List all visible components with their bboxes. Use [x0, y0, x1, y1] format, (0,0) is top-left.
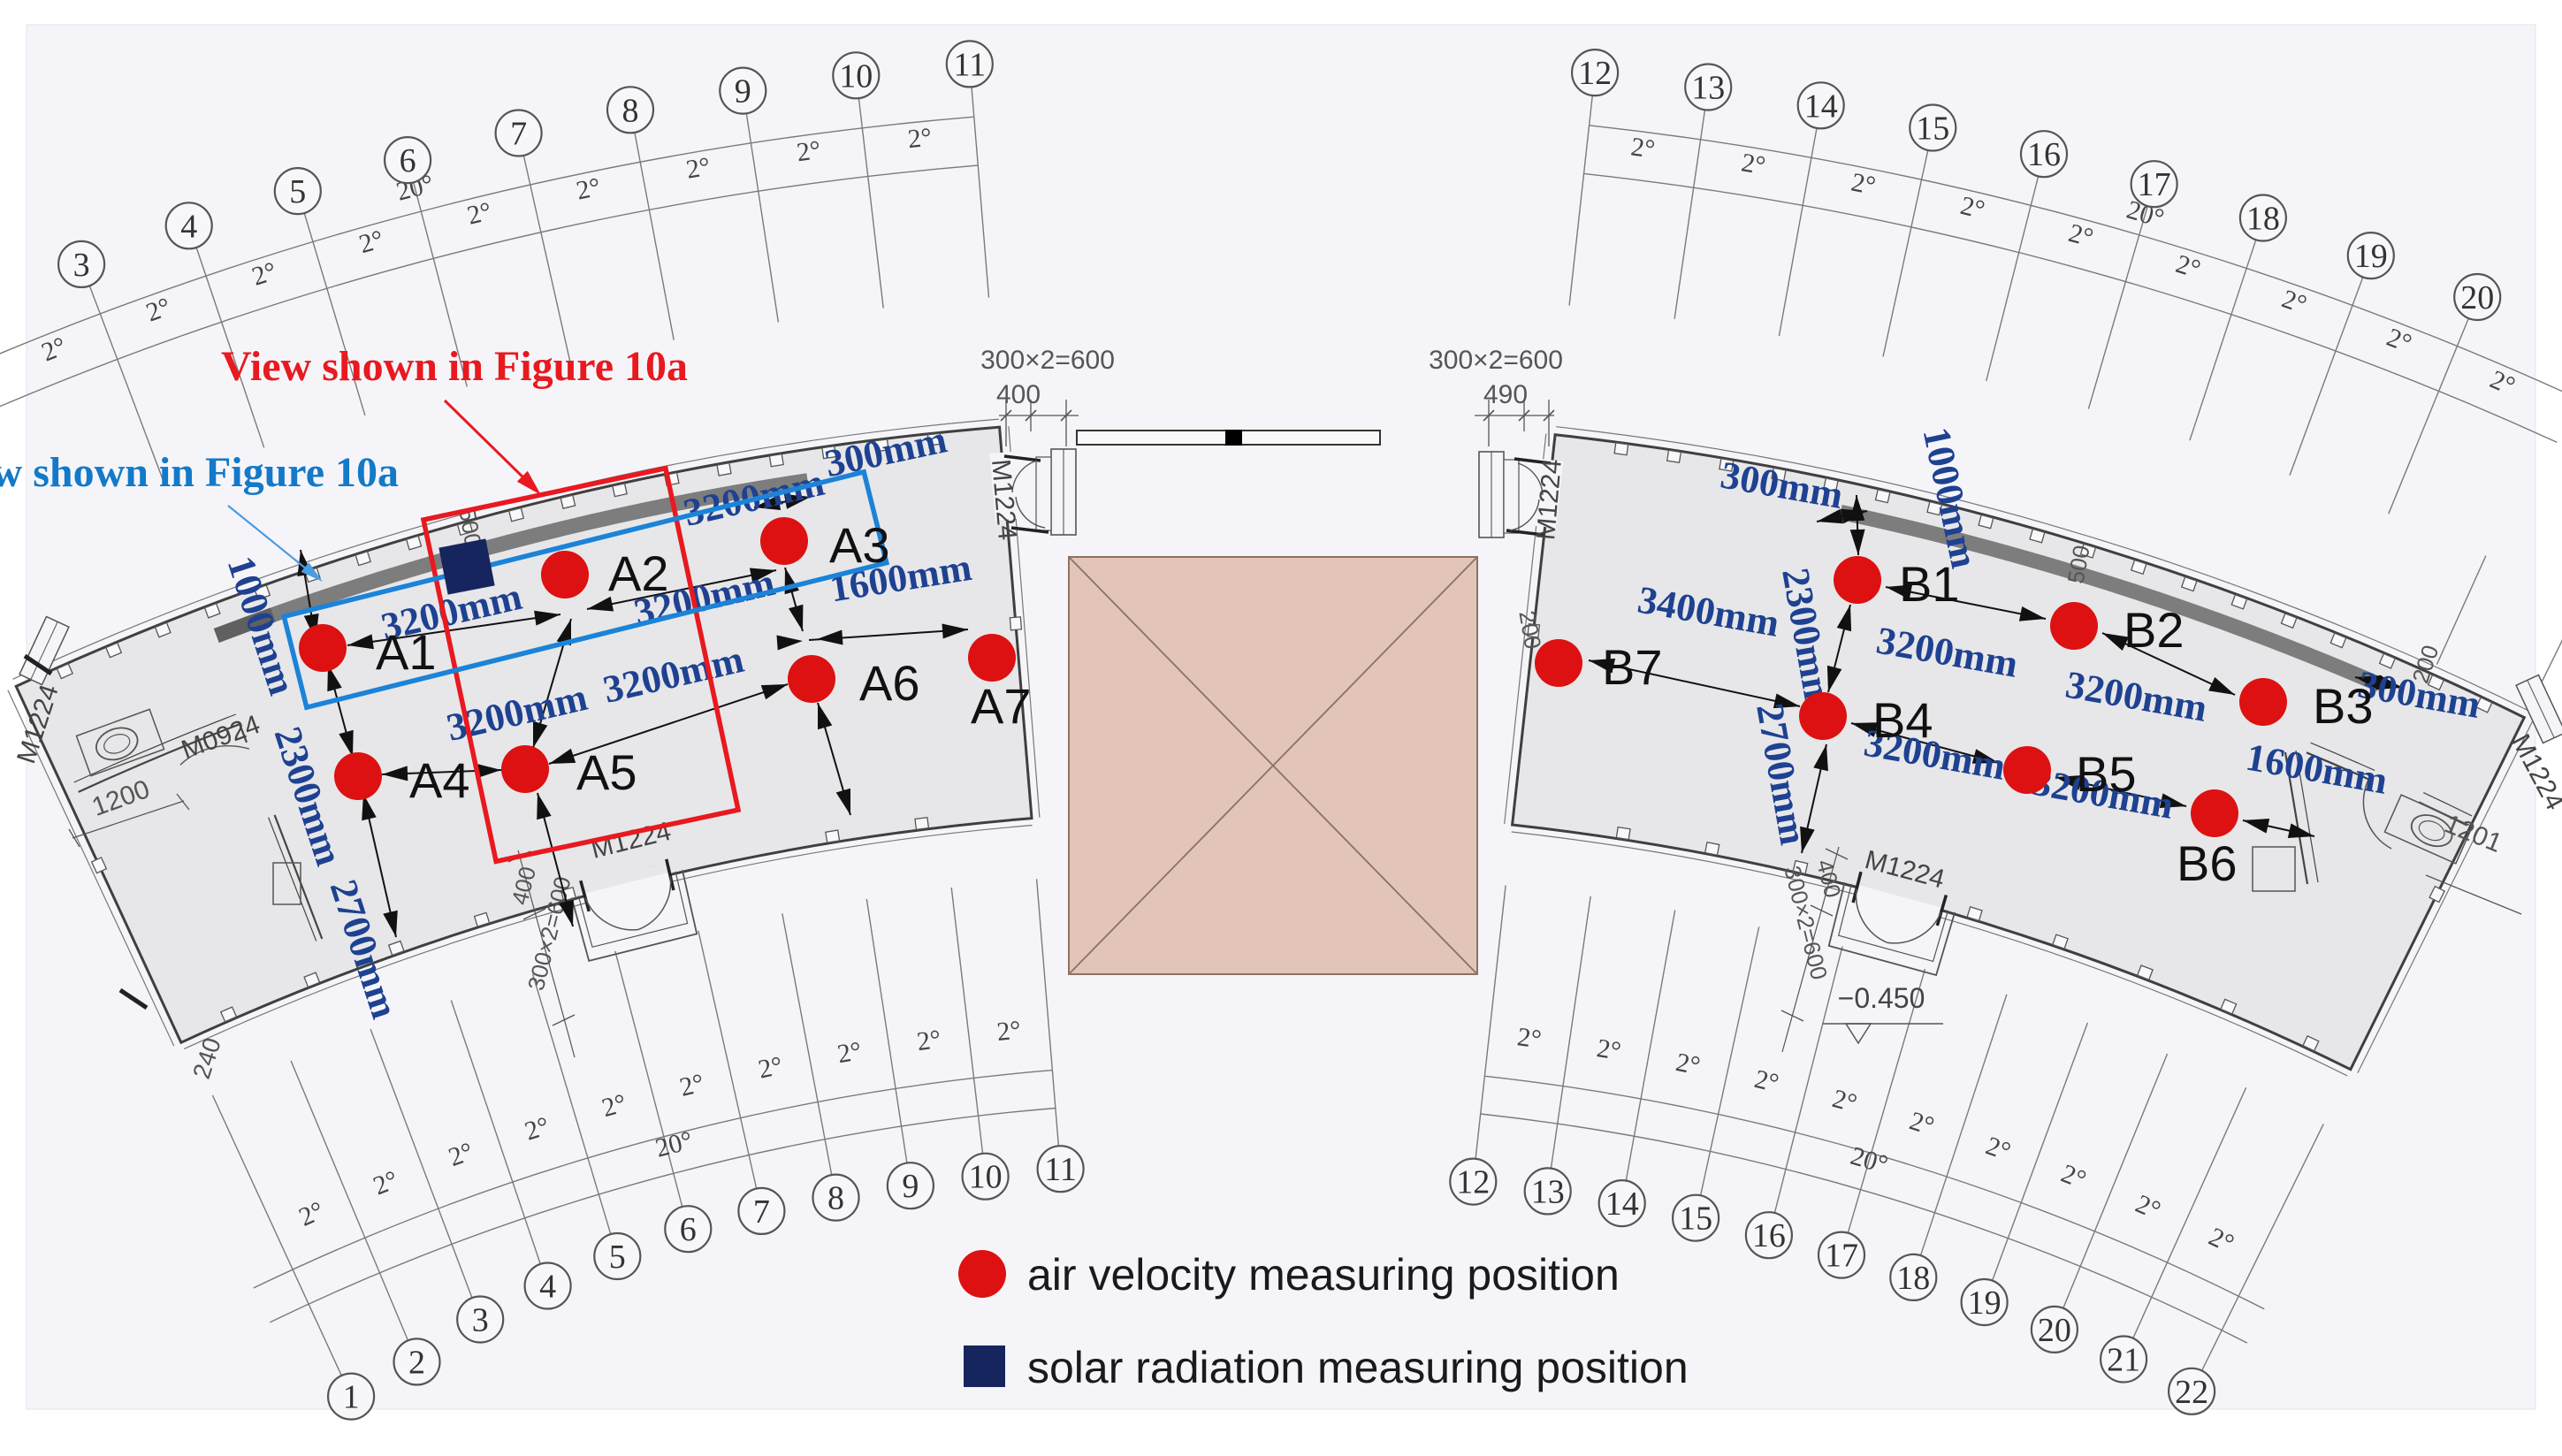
svg-text:A7: A7 — [971, 678, 1032, 734]
svg-text:2°: 2° — [906, 123, 933, 155]
svg-text:13: 13 — [1531, 1173, 1565, 1210]
svg-text:2°: 2° — [795, 135, 822, 167]
svg-text:15: 15 — [1679, 1201, 1712, 1238]
svg-text:16: 16 — [2027, 136, 2061, 173]
svg-text:2°: 2° — [1739, 148, 1767, 180]
svg-text:490: 490 — [1483, 380, 1528, 409]
svg-text:2°: 2° — [915, 1025, 942, 1056]
svg-text:A6: A6 — [859, 655, 920, 711]
svg-text:B2: B2 — [2124, 602, 2185, 658]
svg-text:4: 4 — [180, 208, 197, 245]
svg-text:10: 10 — [839, 57, 873, 95]
svg-text:B6: B6 — [2177, 835, 2238, 891]
svg-text:16: 16 — [1752, 1217, 1786, 1254]
svg-text:5: 5 — [289, 173, 306, 210]
svg-text:11: 11 — [954, 46, 987, 83]
svg-text:17: 17 — [1825, 1238, 1858, 1275]
svg-text:View shown in Figure 10a: View shown in Figure 10a — [0, 449, 399, 496]
svg-text:18: 18 — [1896, 1260, 1930, 1297]
svg-text:2°: 2° — [995, 1016, 1022, 1048]
svg-text:6: 6 — [680, 1211, 697, 1248]
svg-text:A1: A1 — [376, 624, 437, 680]
svg-text:21: 21 — [2107, 1342, 2140, 1379]
svg-text:3: 3 — [73, 247, 90, 284]
svg-text:B3: B3 — [2313, 678, 2374, 734]
svg-text:solar radiation measuring posi: solar radiation measuring position — [1027, 1343, 1689, 1392]
svg-text:14: 14 — [1605, 1185, 1639, 1223]
svg-text:A5: A5 — [576, 744, 637, 800]
svg-text:−0.450: −0.450 — [1838, 982, 1925, 1014]
svg-text:19: 19 — [1968, 1284, 2002, 1322]
svg-text:2: 2 — [408, 1344, 425, 1381]
svg-text:A3: A3 — [829, 517, 890, 573]
svg-text:2°: 2° — [835, 1036, 864, 1069]
svg-text:B1: B1 — [1899, 556, 1960, 612]
svg-text:8: 8 — [622, 92, 639, 129]
svg-text:18: 18 — [2246, 201, 2280, 238]
svg-text:5: 5 — [609, 1239, 626, 1276]
svg-text:2°: 2° — [1595, 1033, 1623, 1066]
svg-text:11: 11 — [1044, 1151, 1077, 1188]
svg-text:B7: B7 — [1602, 639, 1663, 695]
svg-text:7: 7 — [510, 116, 527, 153]
svg-text:10: 10 — [969, 1159, 1003, 1196]
svg-text:2°: 2° — [1629, 132, 1657, 164]
svg-text:20: 20 — [2038, 1312, 2071, 1349]
svg-text:17: 17 — [2138, 166, 2171, 203]
svg-text:9: 9 — [735, 73, 751, 111]
svg-text:2°: 2° — [684, 152, 713, 185]
svg-text:1: 1 — [343, 1379, 360, 1416]
svg-text:14: 14 — [1804, 88, 1838, 125]
svg-text:7: 7 — [753, 1193, 770, 1231]
svg-text:B5: B5 — [2076, 746, 2137, 802]
svg-text:300×2=600: 300×2=600 — [1429, 346, 1563, 375]
svg-text:22: 22 — [2175, 1374, 2208, 1411]
svg-text:15: 15 — [1916, 111, 1949, 148]
svg-text:A2: A2 — [608, 545, 669, 601]
svg-text:3: 3 — [472, 1302, 489, 1339]
svg-text:13: 13 — [1691, 70, 1725, 107]
svg-text:2°: 2° — [1515, 1022, 1543, 1054]
svg-text:B4: B4 — [1872, 692, 1933, 748]
svg-text:12: 12 — [1578, 55, 1612, 92]
svg-text:4: 4 — [539, 1269, 556, 1306]
svg-text:air velocity measuring positio: air velocity measuring position — [1027, 1250, 1620, 1300]
svg-text:6: 6 — [400, 142, 416, 179]
svg-text:8: 8 — [827, 1180, 844, 1217]
svg-text:A4: A4 — [409, 752, 470, 808]
svg-text:View shown in Figure 10a: View shown in Figure 10a — [221, 343, 688, 390]
svg-text:300×2=600: 300×2=600 — [980, 346, 1115, 375]
svg-text:12: 12 — [1456, 1164, 1490, 1201]
svg-text:400: 400 — [996, 380, 1041, 409]
svg-text:9: 9 — [902, 1168, 919, 1205]
svg-text:19: 19 — [2354, 238, 2388, 275]
svg-text:20: 20 — [2460, 279, 2494, 316]
